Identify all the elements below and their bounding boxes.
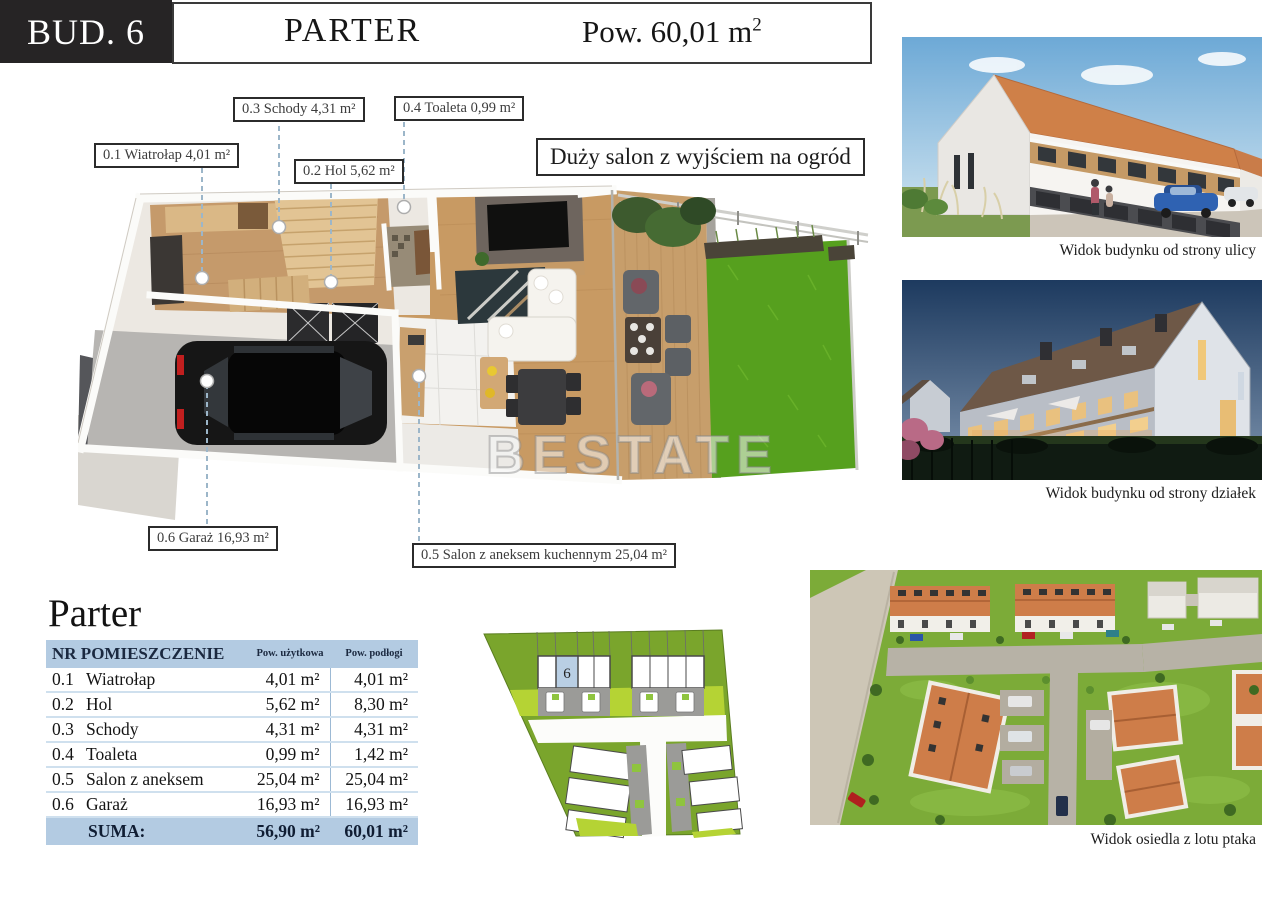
table-row: 0.6Garaż 16,93 m²16,93 m² <box>46 792 418 817</box>
photo-garden-view <box>902 280 1262 480</box>
col-header-floor: Pow. podłogi <box>330 640 418 668</box>
room-label-garaz: 0.6 Garaż 16,93 m² <box>148 526 278 551</box>
table-row: 0.2Hol 5,62 m²8,30 m² <box>46 692 418 717</box>
building-number: BUD. 6 <box>27 11 145 53</box>
area-table-panel: Parter NR POMIESZCZENIE Pow. użytkowa Po… <box>46 594 418 845</box>
sofa <box>488 317 576 361</box>
tv-screen <box>487 201 569 251</box>
total-area: Pow. 60,01 m2 <box>582 14 762 50</box>
table-row: 0.3Schody 4,31 m²4,31 m² <box>46 717 418 742</box>
callout-salon-ogrod: Duży salon z wyjściem na ogród <box>536 138 865 176</box>
floorplan-page: BUD. 6 PARTER Pow. 60,01 m2 <box>0 0 1280 905</box>
unit-number: 6 <box>563 666 571 682</box>
col-header-usable: Pow. użytkowa <box>250 640 330 668</box>
table-row: 0.4Toaleta 0,99 m²1,42 m² <box>46 742 418 767</box>
header-box: PARTER Pow. 60,01 m2 <box>172 2 872 64</box>
table-row: 0.5Salon z aneksem 25,04 m²25,04 m² <box>46 767 418 792</box>
watermark: BESTATE <box>486 424 779 486</box>
table-sum-row: SUMA: 56,90 m² 60,01 m² <box>46 817 418 845</box>
building-badge: BUD. 6 <box>0 0 172 63</box>
photo-caption-garden: Widok budynku od strony działek <box>902 485 1256 503</box>
table-title: Parter <box>48 594 418 635</box>
room-label-wiatrolap: 0.1 Wiatrołap 4,01 m² <box>94 143 239 168</box>
car <box>175 341 387 445</box>
floor-title: PARTER <box>284 12 421 50</box>
site-plan: 6 <box>480 618 746 842</box>
photo-street-view <box>902 37 1262 237</box>
photo-caption-street: Widok budynku od strony ulicy <box>902 242 1256 260</box>
table-header-row: NR POMIESZCZENIE Pow. użytkowa Pow. podł… <box>46 640 418 668</box>
room-label-hol: 0.2 Hol 5,62 m² <box>294 159 404 184</box>
room-label-schody: 0.3 Schody 4,31 m² <box>233 97 365 122</box>
photo-aerial-view <box>810 570 1262 825</box>
col-header-room: NR POMIESZCZENIE <box>46 640 250 668</box>
area-table: NR POMIESZCZENIE Pow. użytkowa Pow. podł… <box>46 640 418 845</box>
dining-table <box>518 369 566 425</box>
room-label-salon: 0.5 Salon z aneksem kuchennym 25,04 m² <box>412 543 676 568</box>
photo-caption-aerial: Widok osiedla z lotu ptaka <box>810 831 1256 849</box>
table-row: 0.1Wiatrołap 4,01 m²4,01 m² <box>46 668 418 692</box>
room-label-toaleta: 0.4 Toaleta 0,99 m² <box>394 96 524 121</box>
